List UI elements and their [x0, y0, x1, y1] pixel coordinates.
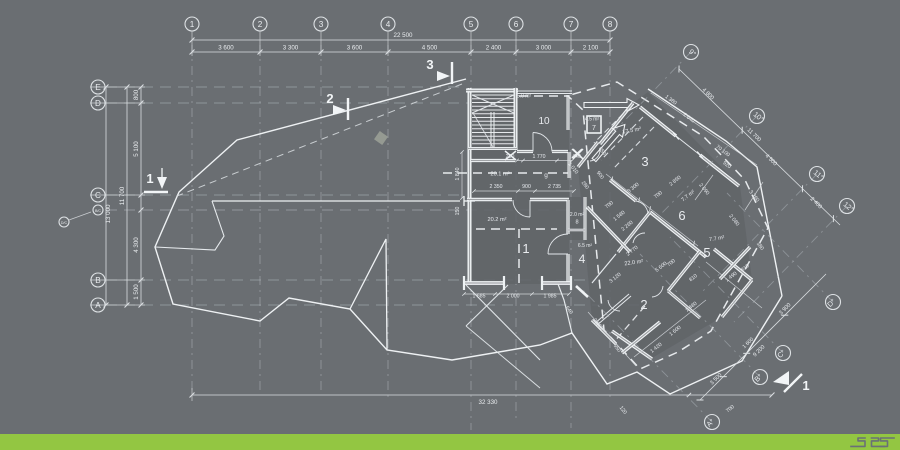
svg-text:5 100: 5 100: [133, 141, 140, 157]
svg-text:1 500: 1 500: [133, 284, 140, 300]
svg-text:3: 3: [319, 20, 324, 29]
svg-text:2 400: 2 400: [486, 45, 502, 52]
svg-text:3 600: 3 600: [218, 45, 234, 52]
svg-text:1 840: 1 840: [455, 167, 461, 180]
svg-text:C: C: [95, 191, 101, 200]
svg-text:2.0 m²: 2.0 m²: [570, 212, 585, 218]
svg-text:3 300: 3 300: [283, 45, 299, 52]
svg-text:D: D: [95, 99, 101, 108]
svg-text:1 985: 1 985: [544, 294, 557, 300]
svg-text:3: 3: [641, 154, 648, 169]
svg-text:3 600: 3 600: [347, 45, 363, 52]
svg-text:280: 280: [506, 154, 515, 160]
svg-text:5: 5: [469, 20, 474, 29]
svg-text:13 000: 13 000: [105, 204, 112, 223]
svg-text:3 000: 3 000: [536, 45, 552, 52]
svg-text:4 300: 4 300: [133, 237, 140, 253]
svg-text:B: B: [95, 276, 101, 285]
svg-text:7: 7: [592, 125, 596, 132]
svg-text:800: 800: [133, 89, 140, 100]
svg-text:11 700: 11 700: [119, 186, 126, 205]
svg-text:1: 1: [190, 20, 195, 29]
svg-text:2 735: 2 735: [548, 184, 561, 190]
svg-text:2: 2: [258, 20, 263, 29]
svg-text:4: 4: [386, 20, 391, 29]
svg-text:2: 2: [640, 297, 647, 312]
svg-text:22 500: 22 500: [394, 32, 413, 39]
svg-text:2: 2: [326, 91, 333, 106]
svg-text:8: 8: [608, 20, 613, 29]
svg-text:4: 4: [579, 252, 586, 266]
svg-text:150: 150: [455, 207, 461, 216]
svg-text:g: g: [544, 172, 548, 179]
svg-text:3: 3: [426, 57, 433, 72]
svg-text:20.2 m²: 20.2 m²: [488, 217, 507, 223]
svg-text:6: 6: [678, 208, 685, 223]
svg-text:7: 7: [569, 20, 574, 29]
svg-text:A: A: [95, 301, 101, 310]
svg-text:5: 5: [703, 245, 710, 260]
svg-text:1: 1: [802, 378, 809, 393]
svg-text:4.5 m²: 4.5 m²: [585, 117, 600, 123]
svg-text:1 685: 1 685: [473, 294, 486, 300]
svg-text:10: 10: [538, 116, 550, 127]
svg-text:1: 1: [522, 241, 529, 256]
svg-text:8: 8: [575, 220, 578, 226]
svg-text:900: 900: [522, 184, 531, 190]
svg-text:6.5 m²: 6.5 m²: [578, 243, 593, 249]
svg-text:B/C: B/C: [95, 209, 101, 213]
svg-text:2 350: 2 350: [490, 184, 503, 190]
svg-text:2 000: 2 000: [507, 294, 520, 300]
svg-text:4 500: 4 500: [422, 45, 438, 52]
svg-text:E: E: [95, 83, 101, 92]
svg-text:2 100: 2 100: [583, 45, 599, 52]
svg-text:1: 1: [146, 171, 153, 186]
svg-text:6: 6: [514, 20, 519, 29]
svg-text:D/C: D/C: [61, 221, 68, 225]
svg-text:1 770: 1 770: [533, 154, 546, 160]
svg-text:32 330: 32 330: [479, 399, 498, 406]
